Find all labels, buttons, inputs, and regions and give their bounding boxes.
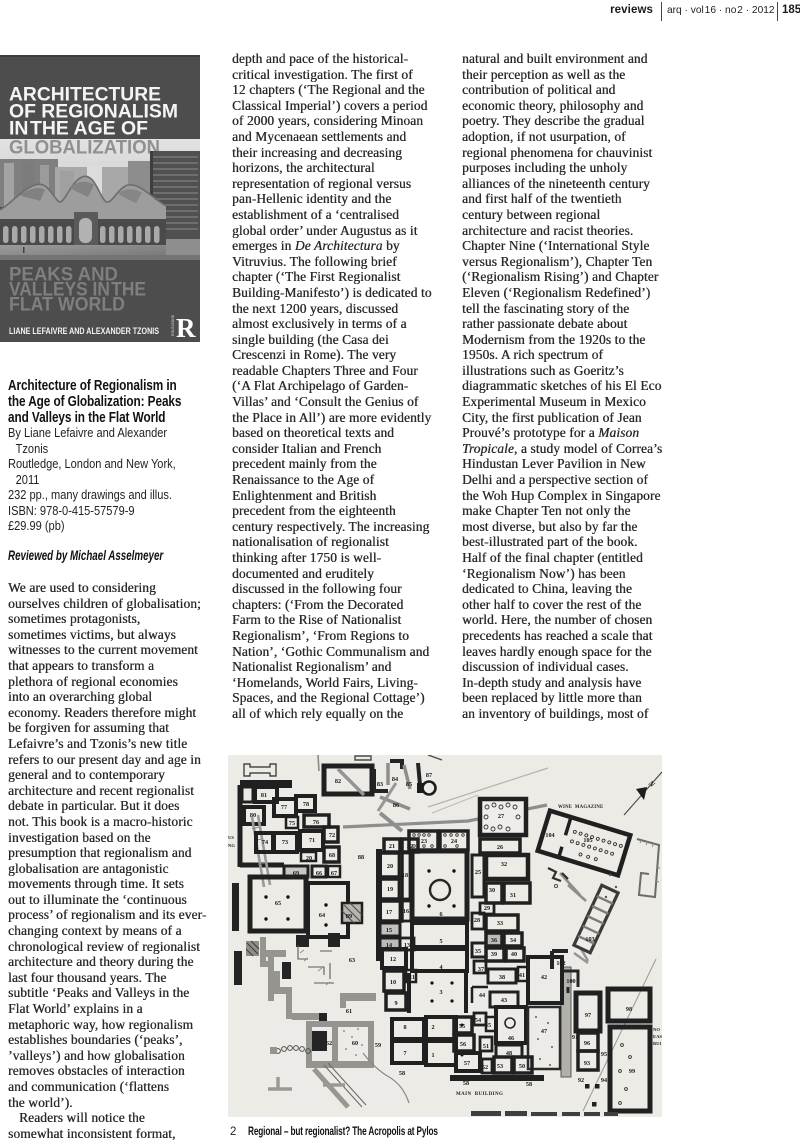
svg-text:85: 85 <box>406 781 412 788</box>
svg-text:10: 10 <box>390 979 396 986</box>
svg-text:3: 3 <box>439 989 442 996</box>
svg-text:94: 94 <box>601 1077 607 1084</box>
svg-text:103: 103 <box>585 936 594 943</box>
svg-text:53: 53 <box>497 1063 503 1070</box>
svg-text:29: 29 <box>484 905 490 912</box>
svg-text:51: 51 <box>483 1043 489 1050</box>
svg-text:50: 50 <box>519 1063 525 1070</box>
svg-text:34: 34 <box>510 937 516 944</box>
svg-text:76: 76 <box>313 819 319 826</box>
svg-text:83: 83 <box>377 781 383 788</box>
svg-text:88: 88 <box>358 854 364 861</box>
svg-text:71: 71 <box>309 837 315 844</box>
svg-text:7: 7 <box>403 1050 406 1057</box>
svg-text:59: 59 <box>375 1042 381 1049</box>
svg-text:26: 26 <box>497 844 503 851</box>
svg-text:11: 11 <box>409 974 415 981</box>
svg-text:87: 87 <box>426 772 432 779</box>
svg-text:20: 20 <box>387 863 393 870</box>
svg-text:74: 74 <box>262 839 268 846</box>
svg-text:97: 97 <box>585 1012 591 1019</box>
svg-text:2: 2 <box>431 1024 434 1031</box>
svg-text:20: 20 <box>306 855 312 862</box>
svg-text:WINE MAGAZINE: WINE MAGAZINE <box>558 805 603 810</box>
svg-text:81: 81 <box>261 792 267 799</box>
svg-text:17: 17 <box>386 909 392 916</box>
svg-text:21: 21 <box>389 843 395 850</box>
svg-text:78: 78 <box>303 801 309 808</box>
svg-text:NO: NO <box>653 1027 660 1032</box>
svg-text:39: 39 <box>491 951 497 958</box>
svg-text:89: 89 <box>346 913 352 920</box>
svg-text:42: 42 <box>541 974 547 981</box>
svg-text:33: 33 <box>497 920 503 927</box>
svg-text:98: 98 <box>626 1006 632 1013</box>
svg-text:16: 16 <box>403 908 409 915</box>
svg-text:99: 99 <box>629 1068 635 1075</box>
svg-text:104: 104 <box>545 832 554 839</box>
svg-text:43: 43 <box>501 997 507 1004</box>
svg-text:63: 63 <box>349 957 355 964</box>
svg-text:4: 4 <box>439 964 442 971</box>
svg-text:95: 95 <box>601 1051 607 1058</box>
svg-text:32: 32 <box>501 861 507 868</box>
svg-text:1: 1 <box>431 1052 434 1059</box>
svg-text:66: 66 <box>316 870 322 877</box>
svg-text:67: 67 <box>331 870 337 877</box>
svg-text:R: R <box>176 313 196 342</box>
svg-text:40: 40 <box>511 951 517 958</box>
svg-text:56: 56 <box>460 1041 466 1048</box>
svg-text:93: 93 <box>584 1060 590 1067</box>
svg-text:36: 36 <box>491 937 497 944</box>
svg-text:45: 45 <box>485 1022 491 1029</box>
svg-text:GLOBALIZATION: GLOBALIZATION <box>9 137 160 159</box>
svg-text:77: 77 <box>281 804 287 811</box>
svg-text:EAS: EAS <box>653 1034 662 1039</box>
svg-text:60: 60 <box>352 1040 358 1047</box>
svg-text:46: 46 <box>508 1035 514 1042</box>
svg-text:19: 19 <box>387 886 393 893</box>
svg-text:28: 28 <box>474 917 480 924</box>
svg-text:31: 31 <box>510 892 516 899</box>
svg-text:37: 37 <box>478 966 484 973</box>
svg-text:MAIN BUILDING: MAIN BUILDING <box>456 1092 503 1097</box>
svg-text:12: 12 <box>390 956 396 963</box>
svg-text:41: 41 <box>519 972 525 979</box>
svg-text:5: 5 <box>439 938 442 945</box>
svg-text:96: 96 <box>584 1040 590 1047</box>
svg-text:FLAT WORLD: FLAT WORLD <box>9 294 125 316</box>
svg-text:68: 68 <box>329 852 335 859</box>
svg-text:105: 105 <box>583 837 592 844</box>
svg-text:24: 24 <box>451 838 457 845</box>
svg-text:55: 55 <box>459 1023 465 1030</box>
svg-text:47: 47 <box>541 1028 547 1035</box>
svg-text:86: 86 <box>393 802 399 809</box>
svg-text:27: 27 <box>498 813 504 820</box>
svg-text:72: 72 <box>329 832 335 839</box>
svg-text:75: 75 <box>289 820 295 827</box>
svg-text:84: 84 <box>392 776 398 783</box>
svg-text:54: 54 <box>475 1017 481 1024</box>
svg-text:65: 65 <box>275 900 281 907</box>
svg-text:LIANE LEFAIVRE AND ALEXANDER T: LIANE LEFAIVRE AND ALEXANDER TZONIS <box>9 326 159 337</box>
svg-text:8: 8 <box>403 1024 406 1031</box>
svg-text:38: 38 <box>499 974 505 981</box>
svg-text:58: 58 <box>463 1080 469 1087</box>
svg-text:44: 44 <box>479 992 485 999</box>
svg-text:92: 92 <box>578 1077 584 1084</box>
svg-text:15: 15 <box>386 927 392 934</box>
svg-text:64: 64 <box>319 912 325 919</box>
svg-text:58: 58 <box>526 1081 532 1088</box>
svg-text:6: 6 <box>439 911 442 918</box>
svg-text:23: 23 <box>421 838 427 845</box>
svg-text:BUI: BUI <box>653 1041 661 1046</box>
svg-text:73: 73 <box>282 839 288 846</box>
svg-text:61: 61 <box>346 1008 352 1015</box>
svg-text:52: 52 <box>482 1064 488 1071</box>
svg-text:102: 102 <box>556 960 565 967</box>
svg-text:ROUTLEDGE: ROUTLEDGE <box>171 314 175 336</box>
svg-text:NG: NG <box>228 843 235 848</box>
svg-text:58: 58 <box>399 1070 405 1077</box>
svg-text:82: 82 <box>335 778 341 785</box>
svg-text:9: 9 <box>394 1000 397 1007</box>
svg-text:62: 62 <box>326 1040 332 1047</box>
svg-text:30: 30 <box>489 887 495 894</box>
svg-text:25: 25 <box>475 869 481 876</box>
svg-text:100: 100 <box>566 978 575 985</box>
svg-text:US: US <box>228 835 234 840</box>
svg-text:35: 35 <box>475 948 481 955</box>
svg-text:57: 57 <box>464 1060 470 1067</box>
